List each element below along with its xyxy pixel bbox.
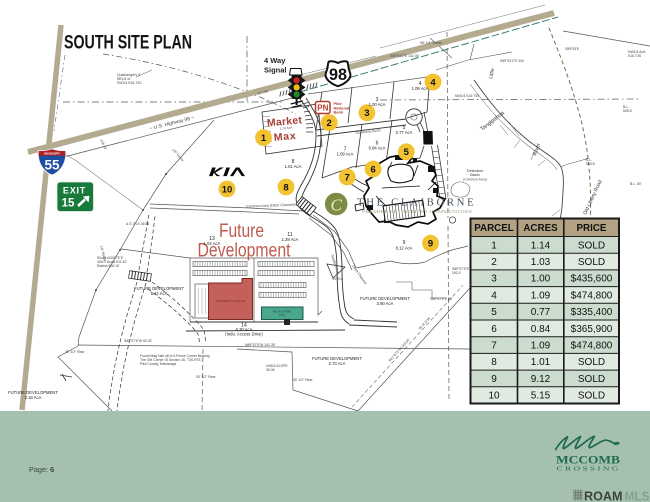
svg-text:SOLD: SOLD — [578, 257, 605, 268]
svg-text:1: 1 — [491, 240, 497, 251]
svg-text:0.77: 0.77 — [531, 307, 551, 318]
svg-text:10: 10 — [222, 184, 233, 195]
svg-text:S89°53'E: S89°53'E — [565, 47, 580, 51]
svg-text:9: 9 — [491, 374, 497, 385]
svg-text:Page: 6: Page: 6 — [29, 465, 54, 474]
svg-text:1.09 AcA: 1.09 AcA — [412, 86, 429, 91]
svg-text:30' 1/2" Rear: 30' 1/2" Rear — [196, 375, 216, 379]
svg-text:9: 9 — [428, 239, 433, 250]
svg-text:7: 7 — [491, 341, 497, 352]
svg-text:$365,900: $365,900 — [571, 324, 613, 335]
svg-text:(Common Area): (Common Area) — [463, 177, 487, 181]
svg-text:2: 2 — [327, 118, 332, 129]
svg-text:NW1/4 S16 T3S: NW1/4 S16 T3S — [455, 94, 480, 98]
svg-text:MISSISSIPPI: MISSISSIPPI — [44, 151, 60, 155]
svg-text:0.77 AcA: 0.77 AcA — [396, 130, 413, 135]
svg-text:3.90 AcA: 3.90 AcA — [377, 301, 394, 306]
svg-text:0.84: 0.84 — [531, 324, 551, 335]
svg-text:PT5: PT5 — [279, 313, 285, 317]
svg-text:1: 1 — [261, 133, 267, 144]
svg-text:SOLD: SOLD — [578, 357, 605, 368]
svg-text:Radius 806.16': Radius 806.16' — [97, 264, 120, 268]
svg-text:4 Way: 4 Way — [264, 56, 286, 65]
svg-text:1.01: 1.01 — [531, 357, 551, 368]
svg-text:N89°57'5"W 142.35': N89°57'5"W 142.35' — [245, 343, 276, 347]
svg-text:1.01 AcA: 1.01 AcA — [285, 164, 302, 169]
svg-text:NE 1/4" Rebar: NE 1/4" Rebar — [420, 41, 443, 45]
svg-text:4: 4 — [491, 290, 497, 301]
svg-text:1.00 AcA: 1.00 AcA — [369, 102, 386, 107]
svg-text:5: 5 — [491, 307, 497, 318]
svg-text:2: 2 — [491, 257, 497, 268]
svg-text:SOUTH SITE PLAN: SOUTH SITE PLAN — [64, 32, 192, 54]
svg-text:8: 8 — [283, 182, 288, 193]
svg-text:98: 98 — [329, 66, 347, 84]
svg-text:7: 7 — [345, 172, 350, 183]
svg-text:THE CLAIBORNE: THE CLAIBORNE — [357, 197, 476, 209]
svg-text:ACRES: ACRES — [523, 223, 558, 234]
svg-text:2.18 AcA: 2.18 AcA — [25, 395, 42, 400]
svg-text:C R O S S I N G: C R O S S I N G — [557, 466, 620, 473]
svg-text:30' B.L.: 30' B.L. — [332, 277, 343, 281]
svg-text:REVISED PTS 90 LB: REVISED PTS 90 LB — [216, 299, 245, 303]
svg-text:Signal: Signal — [264, 66, 287, 75]
svg-text:Bank: Bank — [334, 110, 345, 115]
svg-text:EXIT: EXIT — [63, 186, 86, 196]
svg-text:8.12 AcA: 8.12 AcA — [396, 246, 413, 251]
svg-text:1.09 AcA: 1.09 AcA — [337, 152, 354, 157]
svg-text:SOLD: SOLD — [578, 391, 605, 402]
svg-text:1.00: 1.00 — [531, 274, 551, 285]
svg-text:3: 3 — [364, 108, 369, 119]
svg-text:3: 3 — [491, 274, 497, 285]
svg-text:1.14: 1.14 — [531, 240, 551, 251]
svg-text:1.09: 1.09 — [531, 341, 551, 352]
svg-text:162.4': 162.4' — [452, 271, 461, 275]
svg-text:S89°53'2"E 142.35': S89°53'2"E 142.35' — [390, 54, 419, 58]
svg-text:505.6': 505.6' — [623, 109, 632, 113]
svg-text:MLS: MLS — [625, 489, 650, 502]
svg-text:PRICE: PRICE — [577, 223, 607, 234]
svg-text:B.L. 50': B.L. 50' — [630, 182, 642, 186]
svg-text:15: 15 — [62, 198, 75, 210]
svg-text:S16 T3S: S16 T3S — [628, 54, 642, 58]
svg-text:A.S. PLS 36.58: A.S. PLS 36.58 — [126, 222, 149, 226]
svg-text:30' 1/2" Rear: 30' 1/2" Rear — [293, 378, 313, 382]
svg-text:Max: Max — [273, 130, 296, 144]
svg-text:55: 55 — [44, 158, 60, 173]
svg-text:PN: PN — [317, 103, 328, 112]
svg-text:1.03: 1.03 — [531, 257, 551, 268]
svg-text:8: 8 — [491, 357, 497, 368]
svg-text:5.42 AcA: 5.42 AcA — [151, 291, 168, 296]
svg-text:$335,400: $335,400 — [571, 307, 613, 318]
svg-text:(Indu. Access Drive): (Indu. Access Drive) — [225, 332, 263, 337]
svg-text:PREMIER RETIREMENT COMMUNITIES: PREMIER RETIREMENT COMMUNITIES — [362, 209, 473, 214]
svg-text:6: 6 — [370, 164, 375, 175]
svg-text:36.08: 36.08 — [266, 368, 275, 372]
svg-text:505.6': 505.6' — [586, 162, 595, 166]
svg-text:30' 1/2" Rear: 30' 1/2" Rear — [65, 350, 85, 354]
svg-text:$435,600: $435,600 — [571, 274, 613, 285]
svg-text:C: C — [331, 196, 343, 215]
svg-text:0.84 AcA: 0.84 AcA — [369, 146, 386, 151]
svg-text:SOLD: SOLD — [578, 240, 605, 251]
svg-text:1.04 AcA: 1.04 AcA — [204, 241, 221, 246]
svg-text:PARCEL: PARCEL — [474, 223, 514, 234]
svg-text:SW1/4 S16-T3S: SW1/4 S16-T3S — [117, 81, 142, 85]
svg-text:Pike County, Mississippi: Pike County, Mississippi — [140, 362, 177, 366]
svg-text:2.73 AcA: 2.73 AcA — [329, 361, 346, 366]
svg-text:SOLD: SOLD — [578, 374, 605, 385]
svg-text:5: 5 — [404, 147, 410, 158]
svg-text:$474,800: $474,800 — [571, 290, 613, 301]
svg-text:1.29 AcA: 1.29 AcA — [282, 237, 299, 242]
svg-text:ROAM: ROAM — [584, 489, 623, 502]
svg-text:5.15: 5.15 — [531, 391, 551, 402]
svg-text:9.12: 9.12 — [531, 374, 551, 385]
svg-text:$474,800: $474,800 — [571, 341, 613, 352]
svg-text:1.09: 1.09 — [531, 290, 551, 301]
svg-text:S89°57'5"W 90.32': S89°57'5"W 90.32' — [124, 339, 153, 343]
svg-text:10: 10 — [488, 391, 500, 402]
svg-text:4: 4 — [430, 77, 436, 88]
svg-text:S89°53'2"E 426: S89°53'2"E 426 — [500, 59, 524, 63]
svg-text:S89°57'5"E 90': S89°57'5"E 90' — [430, 297, 453, 301]
svg-text:6: 6 — [491, 324, 497, 335]
